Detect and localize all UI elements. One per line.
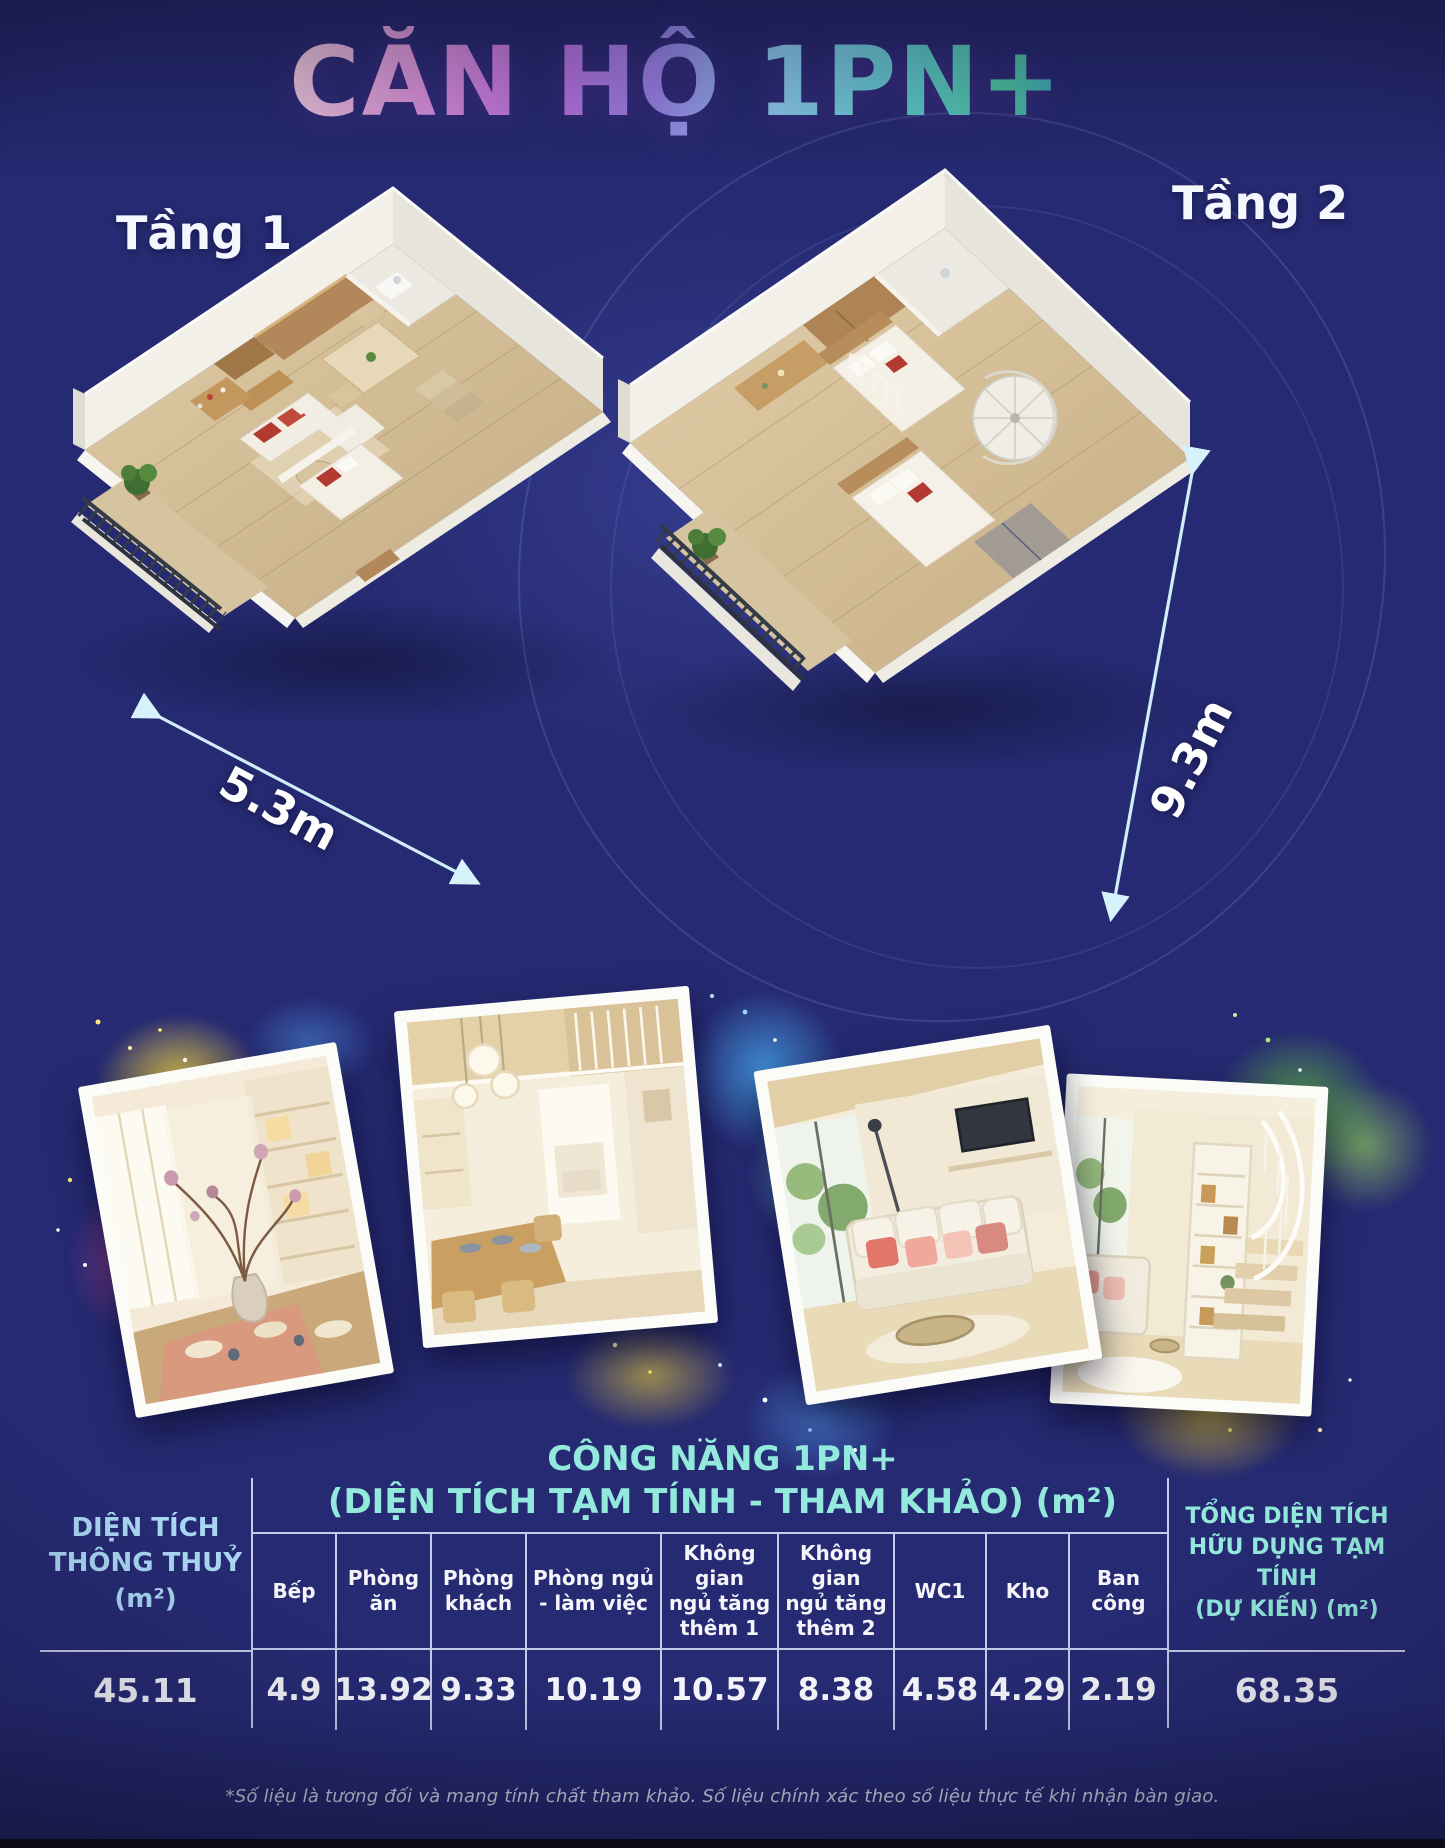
clearance-area-value: 45.11 [40, 1652, 251, 1728]
column-extra-sleep-1-label: Không gian ngủ tăng thêm 1 [662, 1534, 777, 1650]
disclaimer-note: *Số liệu là tương đối và mang tính chất … [0, 1786, 1445, 1807]
column-wc1-label: WC1 [895, 1534, 985, 1650]
spec-title-line1: CÔNG NĂNG 1PN+ [40, 1438, 1405, 1481]
column-storage-value: 4.29 [987, 1650, 1068, 1730]
photo-dining-vase [78, 1042, 394, 1418]
total-header-line2: HỮU DỤNG TẠM TÍNH [1169, 1533, 1405, 1595]
column-bedroom-office-value: 10.19 [527, 1650, 660, 1730]
column-extra-sleep-2: Không gian ngủ tăng thêm 2 8.38 [777, 1534, 893, 1730]
column-storage-label: Kho [987, 1534, 1068, 1650]
column-balcony-value: 2.19 [1070, 1650, 1167, 1730]
column-living: Phòng khách 9.33 [430, 1534, 525, 1730]
total-header-line3: (DỰ KIẾN) (m²) [1195, 1595, 1378, 1626]
spec-title-line2: (DIỆN TÍCH TẠM TÍNH - THAM KHẢO) (m²) [40, 1481, 1405, 1524]
column-wc1: WC1 4.58 [893, 1534, 985, 1730]
floor1-label: Tầng 1 [116, 206, 292, 260]
column-kitchen-label: Bếp [253, 1534, 335, 1650]
room-columns: Bếp 4.9 Phòng ăn 13.92 Phòng khách 9.33 … [253, 1532, 1167, 1730]
column-extra-sleep-1-value: 10.57 [662, 1650, 777, 1730]
column-dining-label: Phòng ăn [337, 1534, 430, 1650]
photo-dining-loft [394, 986, 718, 1349]
floorplan-floor2 [585, 148, 1235, 858]
spec-table-title: CÔNG NĂNG 1PN+ (DIỆN TÍCH TẠM TÍNH - THA… [40, 1438, 1405, 1523]
column-extra-sleep-2-value: 8.38 [779, 1650, 893, 1730]
total-usable-area-value: 68.35 [1169, 1652, 1405, 1728]
floorplan-floor1 [45, 182, 645, 762]
column-extra-sleep-2-label: Không gian ngủ tăng thêm 2 [779, 1534, 893, 1650]
clearance-header-line2: THÔNG THUỶ [49, 1546, 242, 1581]
column-bedroom-office: Phòng ngủ - làm việc 10.19 [525, 1534, 660, 1730]
column-dining-value: 13.92 [337, 1650, 430, 1730]
column-extra-sleep-1: Không gian ngủ tăng thêm 1 10.57 [660, 1534, 777, 1730]
spec-table-section: CÔNG NĂNG 1PN+ (DIỆN TÍCH TẠM TÍNH - THA… [40, 1478, 1405, 1730]
column-kitchen-value: 4.9 [253, 1650, 335, 1730]
column-storage: Kho 4.29 [985, 1534, 1068, 1730]
clearance-header-line3: (m²) [114, 1582, 176, 1617]
page-title: CĂN HỘ 1PN+ [289, 26, 1063, 138]
column-living-label: Phòng khách [432, 1534, 525, 1650]
column-bedroom-office-label: Phòng ngủ - làm việc [527, 1534, 660, 1650]
column-dining: Phòng ăn 13.92 [335, 1534, 430, 1730]
column-kitchen: Bếp 4.9 [253, 1534, 335, 1730]
column-living-value: 9.33 [432, 1650, 525, 1730]
column-balcony: Ban công 2.19 [1068, 1534, 1167, 1730]
column-balcony-label: Ban công [1070, 1534, 1167, 1650]
column-wc1-value: 4.58 [895, 1650, 985, 1730]
photo-stairs-shelves [1050, 1073, 1329, 1416]
floor2-label: Tầng 2 [1172, 176, 1348, 230]
photo-living-sofa [753, 1025, 1102, 1406]
floor2-shadow [620, 642, 1210, 774]
bottom-bar [0, 1839, 1445, 1848]
floor1-shadow [65, 598, 625, 726]
